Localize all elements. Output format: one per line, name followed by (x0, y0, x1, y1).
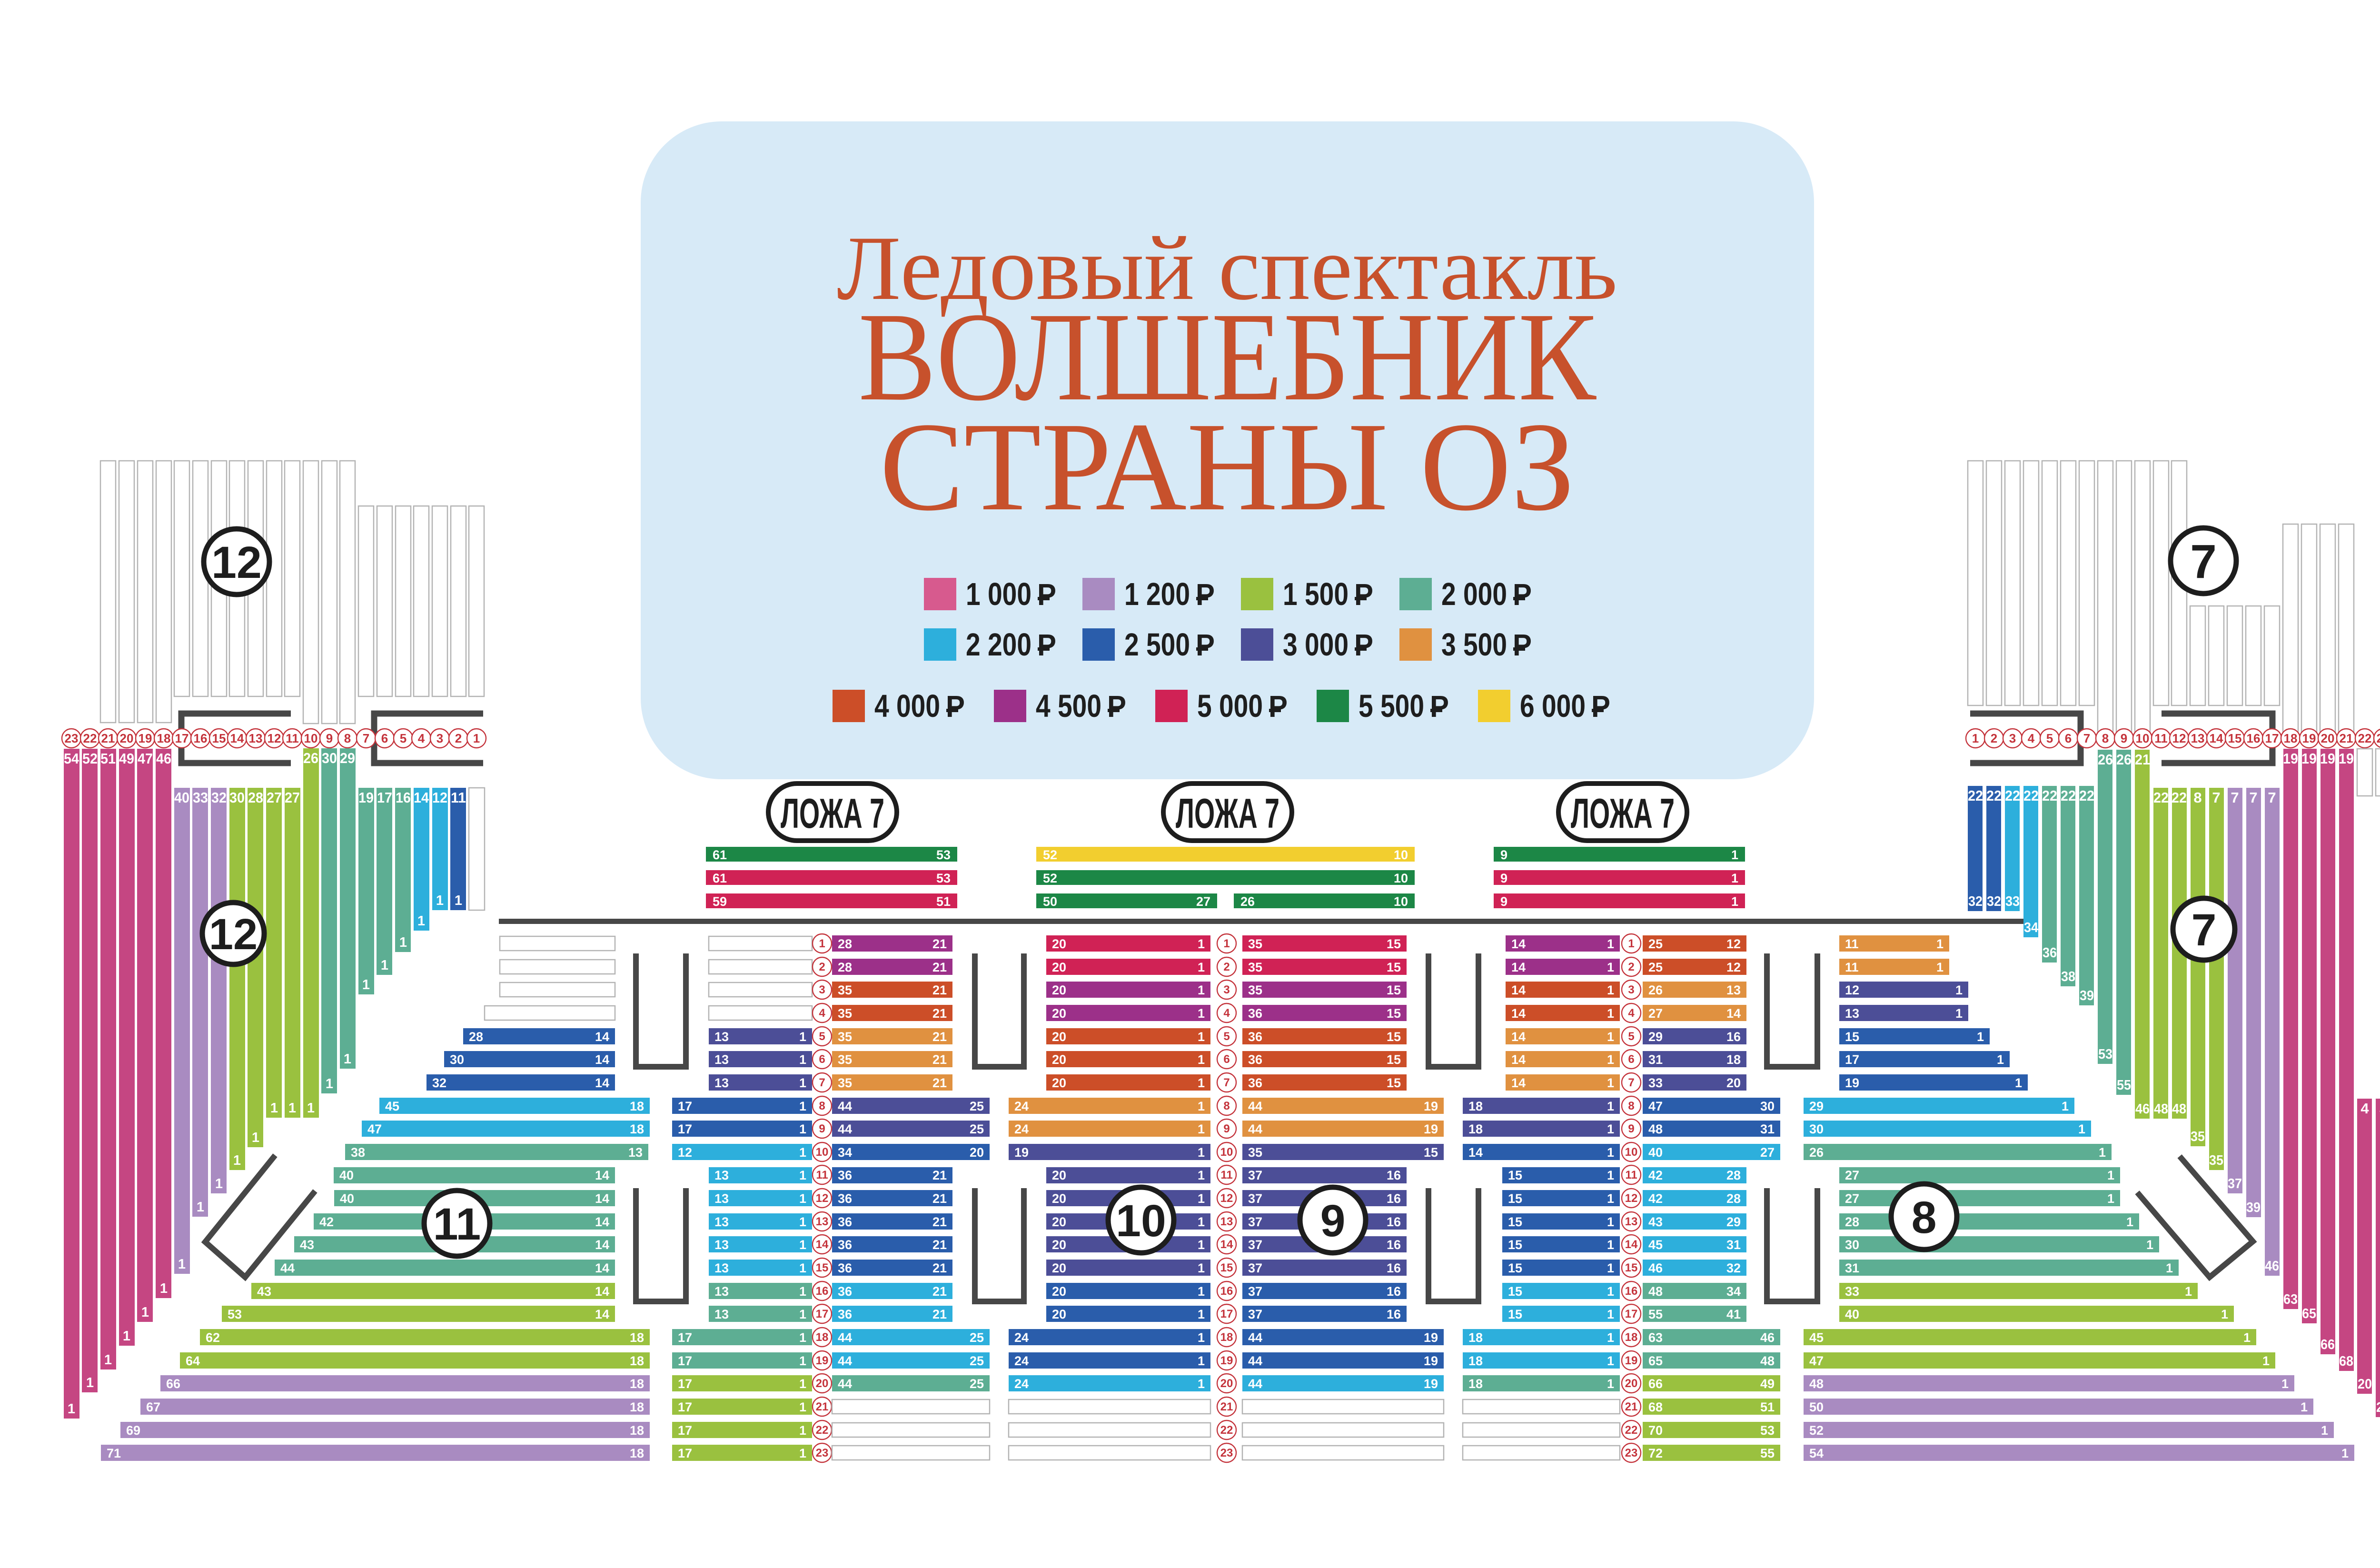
svg-text:6: 6 (1628, 1053, 1634, 1066)
svg-text:11: 11 (1625, 1169, 1637, 1181)
svg-text:7: 7 (363, 731, 369, 745)
svg-text:14: 14 (1625, 1238, 1638, 1251)
svg-text:20: 20 (1052, 1261, 1066, 1275)
svg-text:14: 14 (595, 1307, 609, 1321)
svg-text:ЛОЖА 7: ЛОЖА 7 (1571, 790, 1675, 837)
svg-text:33: 33 (2005, 894, 2020, 909)
svg-text:36: 36 (1248, 1030, 1262, 1044)
svg-text:1: 1 (344, 1052, 351, 1067)
svg-text:11: 11 (451, 789, 466, 806)
svg-text:1: 1 (819, 937, 825, 950)
svg-text:1: 1 (215, 1176, 223, 1191)
svg-text:53: 53 (228, 1307, 242, 1321)
svg-text:1: 1 (455, 893, 462, 908)
svg-text:34: 34 (838, 1145, 852, 1160)
svg-text:17: 17 (678, 1423, 692, 1438)
svg-text:37: 37 (1248, 1215, 1262, 1229)
svg-text:64: 64 (186, 1354, 200, 1368)
svg-text:31: 31 (1845, 1261, 1859, 1275)
svg-text:11: 11 (1220, 1169, 1232, 1181)
svg-text:22: 22 (2023, 787, 2039, 804)
svg-text:1: 1 (1607, 960, 1614, 974)
svg-text:1: 1 (417, 913, 425, 929)
svg-text:15: 15 (1387, 1052, 1401, 1067)
svg-text:13: 13 (1220, 1215, 1233, 1228)
svg-text:51: 51 (100, 750, 116, 767)
svg-text:19: 19 (2301, 750, 2317, 767)
svg-text:1: 1 (799, 1423, 806, 1438)
svg-text:1 500: 1 500 (1283, 576, 1349, 612)
svg-text:32: 32 (1726, 1261, 1741, 1275)
svg-text:48: 48 (1648, 1122, 1663, 1136)
svg-text:14: 14 (595, 1261, 609, 1275)
svg-text:19: 19 (816, 1354, 829, 1367)
svg-text:1: 1 (2062, 1099, 2069, 1113)
svg-text:40: 40 (1845, 1307, 1859, 1321)
svg-text:25: 25 (970, 1122, 984, 1136)
svg-text:21: 21 (932, 1006, 947, 1021)
svg-text:1: 1 (1607, 1261, 1614, 1275)
svg-text:47: 47 (367, 1122, 382, 1136)
svg-text:21: 21 (932, 1284, 947, 1299)
svg-text:28: 28 (838, 937, 852, 951)
svg-text:50: 50 (1043, 894, 1057, 909)
svg-text:20: 20 (1052, 960, 1066, 974)
svg-text:35: 35 (1248, 937, 1262, 951)
svg-text:18: 18 (1726, 1052, 1741, 1067)
svg-text:14: 14 (1468, 1145, 1483, 1160)
svg-text:19: 19 (1845, 1076, 1859, 1090)
svg-text:1: 1 (799, 1238, 806, 1252)
svg-text:2: 2 (1628, 961, 1634, 973)
svg-text:20: 20 (2321, 731, 2335, 745)
svg-text:13: 13 (714, 1191, 729, 1206)
svg-text:38: 38 (2061, 969, 2075, 984)
svg-text:20: 20 (816, 1377, 829, 1390)
svg-text:15: 15 (1387, 960, 1401, 974)
svg-text:1: 1 (2166, 1261, 2173, 1275)
svg-text:1: 1 (1607, 1377, 1614, 1391)
svg-text:12: 12 (816, 1192, 829, 1205)
svg-text:13: 13 (714, 1052, 729, 1067)
svg-text:21: 21 (932, 1052, 947, 1067)
svg-text:17: 17 (175, 731, 189, 745)
svg-text:1: 1 (1198, 1284, 1205, 1299)
svg-text:1: 1 (1198, 1030, 1205, 1044)
svg-text:36: 36 (838, 1215, 852, 1229)
svg-text:36: 36 (838, 1191, 852, 1206)
svg-text:30: 30 (229, 789, 245, 806)
svg-text:1: 1 (799, 1307, 806, 1321)
svg-text:12: 12 (1726, 960, 1741, 974)
svg-text:20: 20 (1052, 1030, 1066, 1044)
svg-text:20: 20 (1052, 1307, 1066, 1321)
svg-text:1: 1 (1198, 1099, 1205, 1113)
svg-text:22: 22 (2061, 787, 2076, 804)
svg-text:16: 16 (1387, 1261, 1401, 1275)
svg-text:15: 15 (1508, 1215, 1522, 1229)
svg-text:15: 15 (1220, 1261, 1233, 1274)
svg-text:16: 16 (1387, 1284, 1401, 1299)
svg-text:19: 19 (2302, 731, 2316, 745)
svg-text:15: 15 (1508, 1261, 1522, 1275)
svg-text:21: 21 (101, 731, 115, 745)
svg-text:Р: Р (946, 689, 965, 724)
svg-text:15: 15 (1625, 1261, 1638, 1274)
svg-text:14: 14 (595, 1168, 609, 1182)
svg-text:6 000: 6 000 (1520, 688, 1586, 724)
svg-text:54: 54 (1809, 1446, 1824, 1460)
svg-text:20: 20 (1052, 1076, 1066, 1090)
svg-text:66: 66 (166, 1377, 180, 1391)
svg-text:10: 10 (2136, 731, 2150, 745)
svg-text:21: 21 (2340, 731, 2353, 745)
svg-text:1: 1 (1223, 937, 1230, 950)
svg-text:13: 13 (1726, 983, 1741, 997)
svg-text:28: 28 (838, 960, 852, 974)
svg-text:1: 1 (252, 1130, 259, 1145)
svg-text:18: 18 (630, 1400, 644, 1414)
svg-text:22: 22 (816, 1424, 829, 1437)
svg-text:45: 45 (1648, 1238, 1663, 1252)
svg-text:7: 7 (2249, 789, 2257, 806)
svg-text:29: 29 (340, 750, 355, 766)
svg-text:1: 1 (1607, 1006, 1614, 1021)
svg-text:44: 44 (838, 1354, 852, 1368)
svg-text:35: 35 (838, 1076, 852, 1090)
svg-text:1: 1 (1936, 937, 1944, 951)
svg-text:45: 45 (1809, 1330, 1824, 1345)
svg-text:2 500: 2 500 (1124, 627, 1190, 663)
svg-text:27: 27 (1845, 1168, 1859, 1182)
svg-text:24: 24 (1014, 1354, 1029, 1368)
svg-text:4 500: 4 500 (1036, 688, 1101, 724)
svg-text:6: 6 (2065, 731, 2072, 745)
svg-text:27: 27 (1845, 1191, 1859, 1206)
svg-text:ЛОЖА 7: ЛОЖА 7 (1176, 790, 1279, 837)
svg-text:1: 1 (160, 1281, 168, 1296)
svg-text:23: 23 (1625, 1447, 1638, 1459)
svg-text:14: 14 (1511, 1030, 1526, 1044)
svg-text:40: 40 (339, 1168, 354, 1182)
svg-text:47: 47 (138, 750, 153, 767)
svg-text:18: 18 (1468, 1122, 1483, 1136)
svg-text:32: 32 (432, 1076, 446, 1090)
svg-text:20: 20 (1052, 1168, 1066, 1182)
svg-text:1: 1 (799, 1330, 806, 1345)
svg-text:19: 19 (139, 731, 152, 745)
svg-text:1: 1 (1731, 894, 1738, 909)
svg-text:1: 1 (1731, 848, 1738, 862)
svg-text:1: 1 (2281, 1377, 2289, 1391)
svg-text:1 000: 1 000 (966, 576, 1031, 612)
svg-text:27: 27 (1196, 894, 1210, 909)
svg-text:8: 8 (1223, 1100, 1230, 1112)
svg-text:5 000: 5 000 (1197, 688, 1263, 724)
svg-text:39: 39 (2080, 988, 2094, 1003)
svg-text:1: 1 (1607, 1030, 1614, 1044)
svg-text:СТРАНЫ ОЗ: СТРАНЫ ОЗ (880, 396, 1575, 537)
svg-text:16: 16 (1387, 1215, 1401, 1229)
svg-text:22: 22 (2172, 789, 2187, 806)
svg-text:1: 1 (799, 1168, 806, 1182)
svg-text:15: 15 (1508, 1238, 1522, 1252)
svg-text:35: 35 (1248, 1145, 1262, 1160)
svg-text:1: 1 (799, 1354, 806, 1368)
svg-text:34: 34 (1726, 1284, 1741, 1299)
svg-text:40: 40 (340, 1191, 354, 1206)
svg-text:33: 33 (193, 789, 208, 806)
svg-text:53: 53 (936, 848, 951, 862)
svg-text:8: 8 (819, 1100, 825, 1112)
svg-text:1: 1 (799, 1191, 806, 1206)
svg-text:1: 1 (1607, 1215, 1614, 1229)
svg-text:21: 21 (932, 937, 947, 951)
svg-text:4: 4 (1223, 1007, 1230, 1020)
svg-text:47: 47 (1648, 1099, 1663, 1113)
svg-text:14: 14 (595, 1076, 609, 1090)
svg-text:1: 1 (2185, 1284, 2192, 1299)
svg-text:15: 15 (1387, 937, 1401, 951)
svg-text:7: 7 (1628, 1076, 1634, 1089)
svg-text:21: 21 (932, 1307, 947, 1321)
svg-text:6: 6 (1223, 1053, 1230, 1066)
svg-text:37: 37 (1248, 1191, 1262, 1206)
svg-text:Р: Р (1037, 628, 1056, 662)
svg-text:5: 5 (1223, 1030, 1230, 1043)
svg-text:15: 15 (1508, 1284, 1522, 1299)
svg-text:Р: Р (1269, 689, 1288, 724)
svg-text:17: 17 (1625, 1308, 1638, 1320)
svg-text:12: 12 (1625, 1192, 1638, 1205)
svg-text:21: 21 (932, 1215, 947, 1229)
svg-text:31: 31 (1648, 1052, 1663, 1067)
svg-text:5: 5 (2046, 731, 2053, 745)
svg-text:71: 71 (107, 1446, 121, 1460)
svg-text:45: 45 (385, 1099, 399, 1113)
svg-text:21: 21 (932, 1261, 947, 1275)
svg-text:33: 33 (1845, 1284, 1859, 1299)
svg-text:4 000: 4 000 (874, 688, 940, 724)
svg-text:17: 17 (678, 1330, 692, 1345)
svg-text:46: 46 (156, 750, 171, 767)
svg-text:46: 46 (1760, 1330, 1775, 1345)
svg-text:15: 15 (1508, 1191, 1522, 1206)
svg-text:44: 44 (838, 1377, 852, 1391)
svg-text:15: 15 (1387, 1030, 1401, 1044)
svg-text:35: 35 (838, 1052, 852, 1067)
svg-text:9: 9 (819, 1122, 825, 1135)
svg-text:8: 8 (344, 731, 351, 745)
svg-text:19: 19 (358, 789, 374, 806)
svg-text:17: 17 (2265, 731, 2279, 745)
svg-text:36: 36 (838, 1238, 852, 1252)
svg-text:52: 52 (1043, 871, 1057, 885)
svg-text:21: 21 (932, 960, 947, 974)
svg-text:49: 49 (1760, 1377, 1775, 1391)
svg-text:Р: Р (1354, 628, 1373, 662)
svg-text:1: 1 (2146, 1238, 2153, 1252)
svg-text:1: 1 (381, 958, 388, 973)
svg-text:20: 20 (120, 731, 134, 745)
svg-text:10: 10 (1394, 894, 1408, 909)
svg-text:26: 26 (2098, 751, 2113, 768)
svg-text:14: 14 (1220, 1238, 1233, 1251)
svg-text:7: 7 (819, 1076, 825, 1089)
svg-text:18: 18 (157, 731, 171, 745)
svg-text:31: 31 (1760, 1122, 1775, 1136)
svg-text:1: 1 (799, 1377, 806, 1391)
svg-text:23: 23 (65, 731, 79, 745)
svg-text:24: 24 (1014, 1330, 1029, 1345)
svg-text:18: 18 (1468, 1099, 1483, 1113)
svg-text:19: 19 (2283, 750, 2298, 767)
svg-text:1: 1 (68, 1401, 75, 1417)
svg-text:18: 18 (630, 1099, 644, 1113)
svg-text:20: 20 (1052, 1006, 1066, 1021)
svg-text:52: 52 (82, 750, 98, 767)
svg-text:1: 1 (86, 1375, 94, 1390)
svg-text:37: 37 (1248, 1261, 1262, 1275)
svg-text:36: 36 (2043, 945, 2057, 961)
svg-text:3: 3 (436, 731, 443, 745)
svg-text:13: 13 (249, 731, 263, 745)
svg-text:44: 44 (280, 1261, 295, 1275)
svg-text:48: 48 (1648, 1284, 1663, 1299)
svg-text:29: 29 (1726, 1215, 1741, 1229)
svg-text:26: 26 (1809, 1145, 1824, 1160)
svg-text:10: 10 (304, 731, 318, 745)
svg-text:23: 23 (816, 1447, 829, 1459)
svg-text:68: 68 (1648, 1400, 1663, 1414)
svg-text:26: 26 (1648, 983, 1663, 997)
svg-text:1: 1 (1607, 1191, 1614, 1206)
svg-text:28: 28 (1726, 1168, 1741, 1182)
svg-text:10: 10 (1220, 1146, 1233, 1159)
svg-text:20: 20 (970, 1145, 984, 1160)
svg-text:22: 22 (2042, 787, 2057, 804)
svg-text:17: 17 (678, 1354, 692, 1368)
svg-text:1: 1 (2221, 1307, 2228, 1321)
svg-text:1: 1 (1198, 1122, 1205, 1136)
svg-text:19: 19 (1625, 1354, 1638, 1367)
svg-text:15: 15 (2228, 731, 2242, 745)
svg-text:30: 30 (1809, 1122, 1824, 1136)
svg-text:1: 1 (1198, 1261, 1205, 1275)
svg-text:7: 7 (2268, 789, 2276, 806)
svg-text:36: 36 (838, 1284, 852, 1299)
svg-text:53: 53 (936, 871, 951, 885)
svg-text:16: 16 (1387, 1238, 1401, 1252)
svg-text:4: 4 (819, 1007, 825, 1020)
svg-text:14: 14 (595, 1030, 609, 1044)
svg-text:12: 12 (211, 537, 262, 588)
svg-text:1: 1 (2341, 1446, 2349, 1460)
svg-text:1: 1 (1198, 1238, 1205, 1252)
svg-text:7: 7 (2212, 789, 2220, 806)
svg-text:13: 13 (816, 1215, 829, 1228)
svg-text:36: 36 (838, 1261, 852, 1275)
svg-text:62: 62 (206, 1330, 220, 1345)
svg-text:37: 37 (1248, 1307, 1262, 1321)
svg-text:2: 2 (1991, 731, 1997, 745)
svg-text:17: 17 (1845, 1052, 1859, 1067)
svg-text:12: 12 (268, 731, 281, 745)
svg-text:25: 25 (1648, 960, 1663, 974)
svg-text:61: 61 (713, 871, 727, 885)
svg-text:20: 20 (1220, 1377, 1233, 1390)
svg-text:9: 9 (1500, 894, 1507, 909)
svg-text:22: 22 (2358, 731, 2372, 745)
svg-text:21: 21 (2376, 1400, 2380, 1415)
svg-text:1: 1 (1997, 1052, 2004, 1067)
svg-text:Р: Р (1513, 628, 1532, 662)
svg-text:1 200: 1 200 (1124, 576, 1190, 612)
svg-text:19: 19 (1424, 1330, 1438, 1345)
svg-text:14: 14 (1511, 1052, 1526, 1067)
svg-text:35: 35 (838, 983, 852, 997)
svg-text:13: 13 (1625, 1215, 1638, 1228)
svg-text:18: 18 (630, 1330, 644, 1345)
svg-text:30: 30 (1760, 1099, 1775, 1113)
svg-text:7: 7 (2083, 731, 2090, 745)
svg-text:61: 61 (713, 848, 727, 862)
svg-text:18: 18 (630, 1354, 644, 1368)
svg-text:20: 20 (1052, 983, 1066, 997)
svg-text:36: 36 (838, 1168, 852, 1182)
svg-text:18: 18 (2284, 731, 2298, 745)
svg-text:1: 1 (1607, 1307, 1614, 1321)
svg-text:10: 10 (1394, 871, 1408, 885)
svg-text:20: 20 (1726, 1076, 1741, 1090)
svg-text:50: 50 (1809, 1400, 1824, 1414)
svg-text:8: 8 (1912, 1192, 1937, 1243)
svg-text:18: 18 (1468, 1330, 1483, 1345)
svg-text:29: 29 (1809, 1099, 1824, 1113)
svg-text:1: 1 (799, 1145, 806, 1160)
svg-text:12: 12 (1726, 937, 1741, 951)
svg-text:1: 1 (1198, 1191, 1205, 1206)
svg-text:53: 53 (2098, 1047, 2112, 1062)
svg-text:1: 1 (799, 1076, 806, 1090)
svg-text:32: 32 (1987, 894, 2001, 909)
svg-text:1: 1 (399, 935, 407, 950)
svg-text:26: 26 (303, 750, 318, 766)
svg-text:22: 22 (1968, 787, 1983, 804)
svg-text:1: 1 (1607, 983, 1614, 997)
svg-text:8: 8 (1628, 1100, 1634, 1112)
svg-text:15: 15 (1508, 1168, 1522, 1182)
svg-text:46: 46 (2265, 1259, 2279, 1274)
svg-text:21: 21 (1625, 1400, 1638, 1413)
svg-text:21: 21 (932, 1238, 947, 1252)
svg-text:5: 5 (400, 731, 407, 745)
svg-text:25: 25 (970, 1330, 984, 1345)
svg-text:5: 5 (1628, 1030, 1634, 1043)
svg-text:1: 1 (1198, 983, 1205, 997)
svg-text:1: 1 (2107, 1168, 2114, 1182)
svg-text:2 200: 2 200 (966, 627, 1031, 663)
svg-text:1: 1 (270, 1101, 278, 1116)
svg-text:3: 3 (1223, 983, 1230, 996)
svg-text:12: 12 (432, 789, 447, 806)
svg-text:16: 16 (1387, 1191, 1401, 1206)
svg-text:28: 28 (1845, 1215, 1859, 1229)
svg-text:Р: Р (1513, 577, 1532, 612)
svg-text:1: 1 (1607, 1354, 1614, 1368)
svg-text:1: 1 (1628, 937, 1634, 950)
svg-text:15: 15 (1424, 1145, 1438, 1160)
